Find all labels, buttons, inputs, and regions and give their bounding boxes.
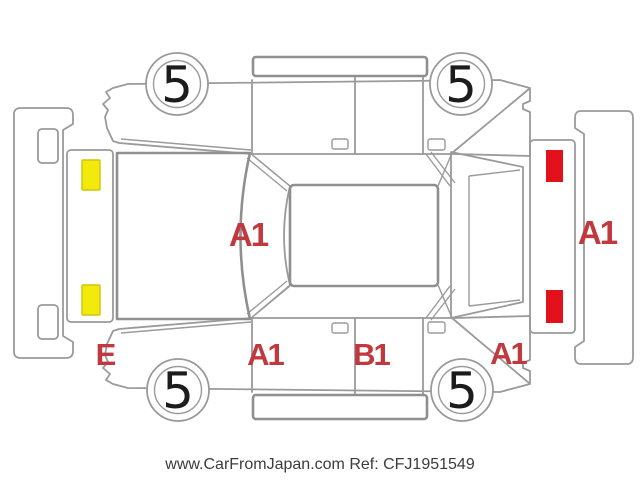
left-front-door-handle xyxy=(332,323,348,333)
wheel-grade-right-rear: 5 xyxy=(445,56,477,114)
damage-mark-front-panel-lower xyxy=(82,285,100,315)
wheel-grade-left-front: 5 xyxy=(162,362,194,420)
rear-pillar-top xyxy=(438,153,452,186)
watermark-reference-text: www.CarFromJapan.com Ref: CFJ1951549 xyxy=(164,456,475,473)
wheel-left-rear: 5 xyxy=(431,359,493,421)
wheel-grade-left-rear: 5 xyxy=(446,362,478,420)
damage-mark-rear-panel-lower xyxy=(546,290,563,323)
wheel-grade-right-front: 5 xyxy=(161,56,193,114)
rear-window-inner-top xyxy=(469,170,520,176)
right-a-pillar-connector-2 xyxy=(247,158,287,191)
damage-label-left-front-door: A1 xyxy=(247,337,284,372)
right-front-door-handle xyxy=(332,139,348,149)
front-headlight-left xyxy=(38,129,58,163)
wheels: 5 5 5 5 xyxy=(146,53,493,421)
front-section xyxy=(14,108,113,358)
right-rear-door-handle xyxy=(428,139,445,150)
windshield-pillar-bottom xyxy=(250,285,290,319)
damage-mark-front-panel-upper xyxy=(82,160,100,190)
top-view xyxy=(117,152,523,319)
roof-panel xyxy=(290,185,438,286)
front-bumper xyxy=(14,108,73,358)
right-rocker-panel xyxy=(253,57,427,76)
rear-window-outer xyxy=(451,152,523,318)
left-a-pillar-connector-2 xyxy=(247,281,287,314)
front-headlight-right xyxy=(38,305,58,339)
rear-pillar-bottom xyxy=(438,285,452,318)
wheel-right-rear: 5 xyxy=(430,53,492,115)
damage-label-left-rear-fender: A1 xyxy=(490,336,527,371)
inspection-sheet: 5 5 5 5 A1 A1 E A1 B1 A1 www.CarFromJapa… xyxy=(0,0,640,480)
damage-mark-rear-panel-upper xyxy=(546,150,563,182)
windshield-pillar-top xyxy=(250,153,290,186)
wheel-left-front: 5 xyxy=(147,359,209,421)
damage-label-left-front-fender: E xyxy=(96,337,116,372)
left-rocker-panel xyxy=(253,395,427,419)
right-c-pillar-connector xyxy=(426,154,450,186)
damage-labels: A1 A1 E A1 B1 A1 xyxy=(96,214,618,372)
left-rear-door-handle xyxy=(428,322,445,333)
damage-label-windshield: A1 xyxy=(229,216,269,253)
left-c-pillar-connector xyxy=(426,286,450,318)
damage-label-rear-bumper: A1 xyxy=(578,214,618,251)
damage-label-left-rear-door: B1 xyxy=(353,337,390,372)
wheel-right-front: 5 xyxy=(146,53,208,115)
car-foldout-diagram: 5 5 5 5 A1 A1 E A1 B1 A1 www.CarFromJapa… xyxy=(0,0,640,480)
